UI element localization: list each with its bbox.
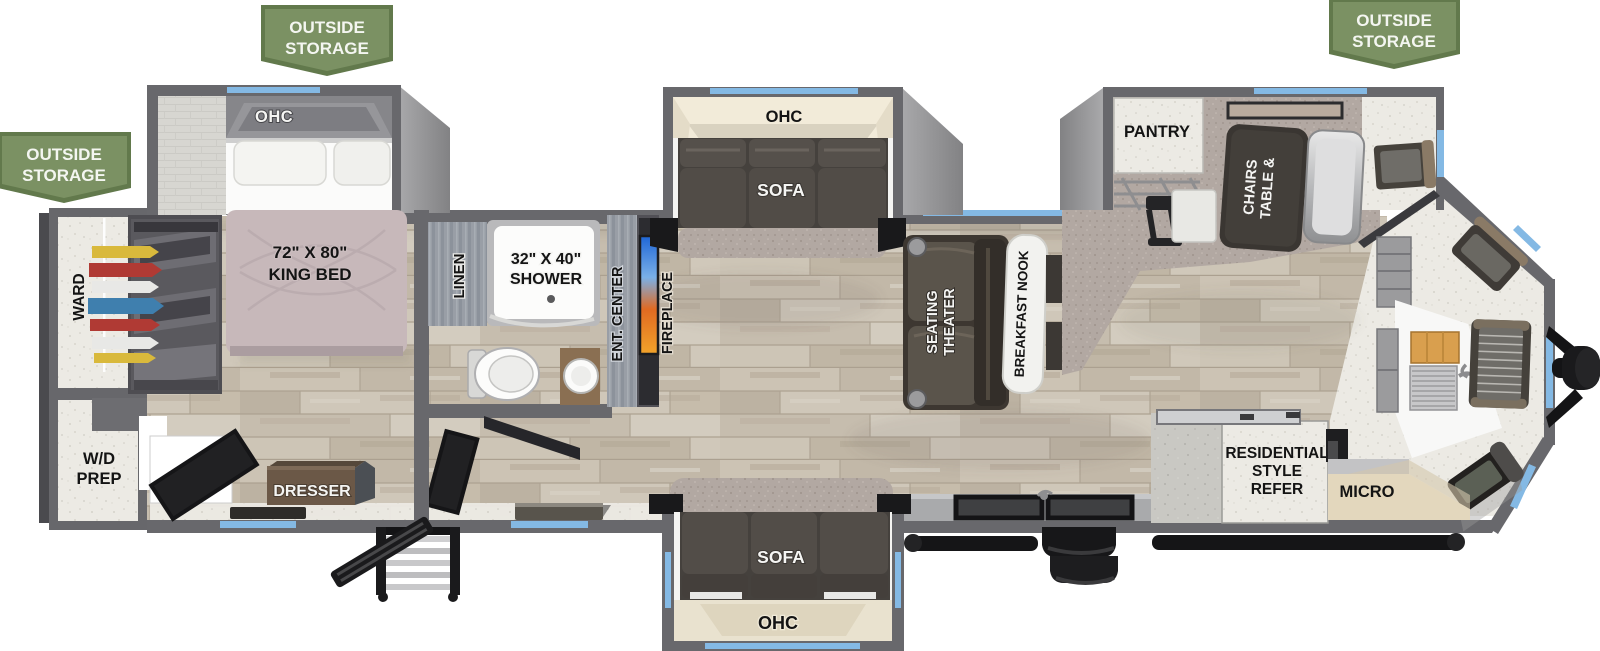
svg-text:FIREPLACE: FIREPLACE — [660, 272, 676, 355]
svg-text:OUTSIDE: OUTSIDE — [289, 18, 365, 37]
svg-text:72" X 80": 72" X 80" — [273, 243, 348, 262]
svg-text:PREP: PREP — [77, 470, 122, 488]
svg-text:MICRO: MICRO — [1340, 483, 1395, 501]
svg-text:SOFA: SOFA — [757, 180, 805, 200]
svg-text:REFER: REFER — [1251, 481, 1304, 498]
svg-text:LINEN: LINEN — [451, 254, 468, 299]
svg-text:WARD: WARD — [71, 273, 88, 320]
svg-text:OHC: OHC — [758, 613, 798, 633]
svg-text:OHC: OHC — [766, 108, 803, 126]
svg-text:STORAGE: STORAGE — [285, 39, 369, 58]
svg-text:OUTSIDE: OUTSIDE — [26, 145, 102, 164]
svg-text:W/D: W/D — [83, 450, 115, 468]
svg-text:STORAGE: STORAGE — [1352, 32, 1436, 51]
svg-text:OHC: OHC — [255, 108, 293, 126]
svg-text:SOFA: SOFA — [757, 547, 805, 567]
svg-text:STORAGE: STORAGE — [22, 166, 106, 185]
svg-text:STYLE: STYLE — [1252, 463, 1302, 480]
svg-text:CHAIRSTABLE &: CHAIRSTABLE & — [1241, 155, 1278, 219]
svg-text:32" X 40": 32" X 40" — [511, 251, 581, 268]
svg-text:SEATINGTHEATER: SEATINGTHEATER — [925, 288, 958, 356]
svg-text:KING BED: KING BED — [268, 265, 351, 284]
svg-text:ENT. CENTER: ENT. CENTER — [610, 266, 626, 362]
svg-text:SHOWER: SHOWER — [510, 271, 582, 288]
svg-text:OUTSIDE: OUTSIDE — [1356, 11, 1432, 30]
svg-text:RESIDENTIAL: RESIDENTIAL — [1225, 445, 1328, 462]
svg-text:DRESSER: DRESSER — [273, 483, 351, 500]
svg-text:PANTRY: PANTRY — [1124, 123, 1190, 141]
